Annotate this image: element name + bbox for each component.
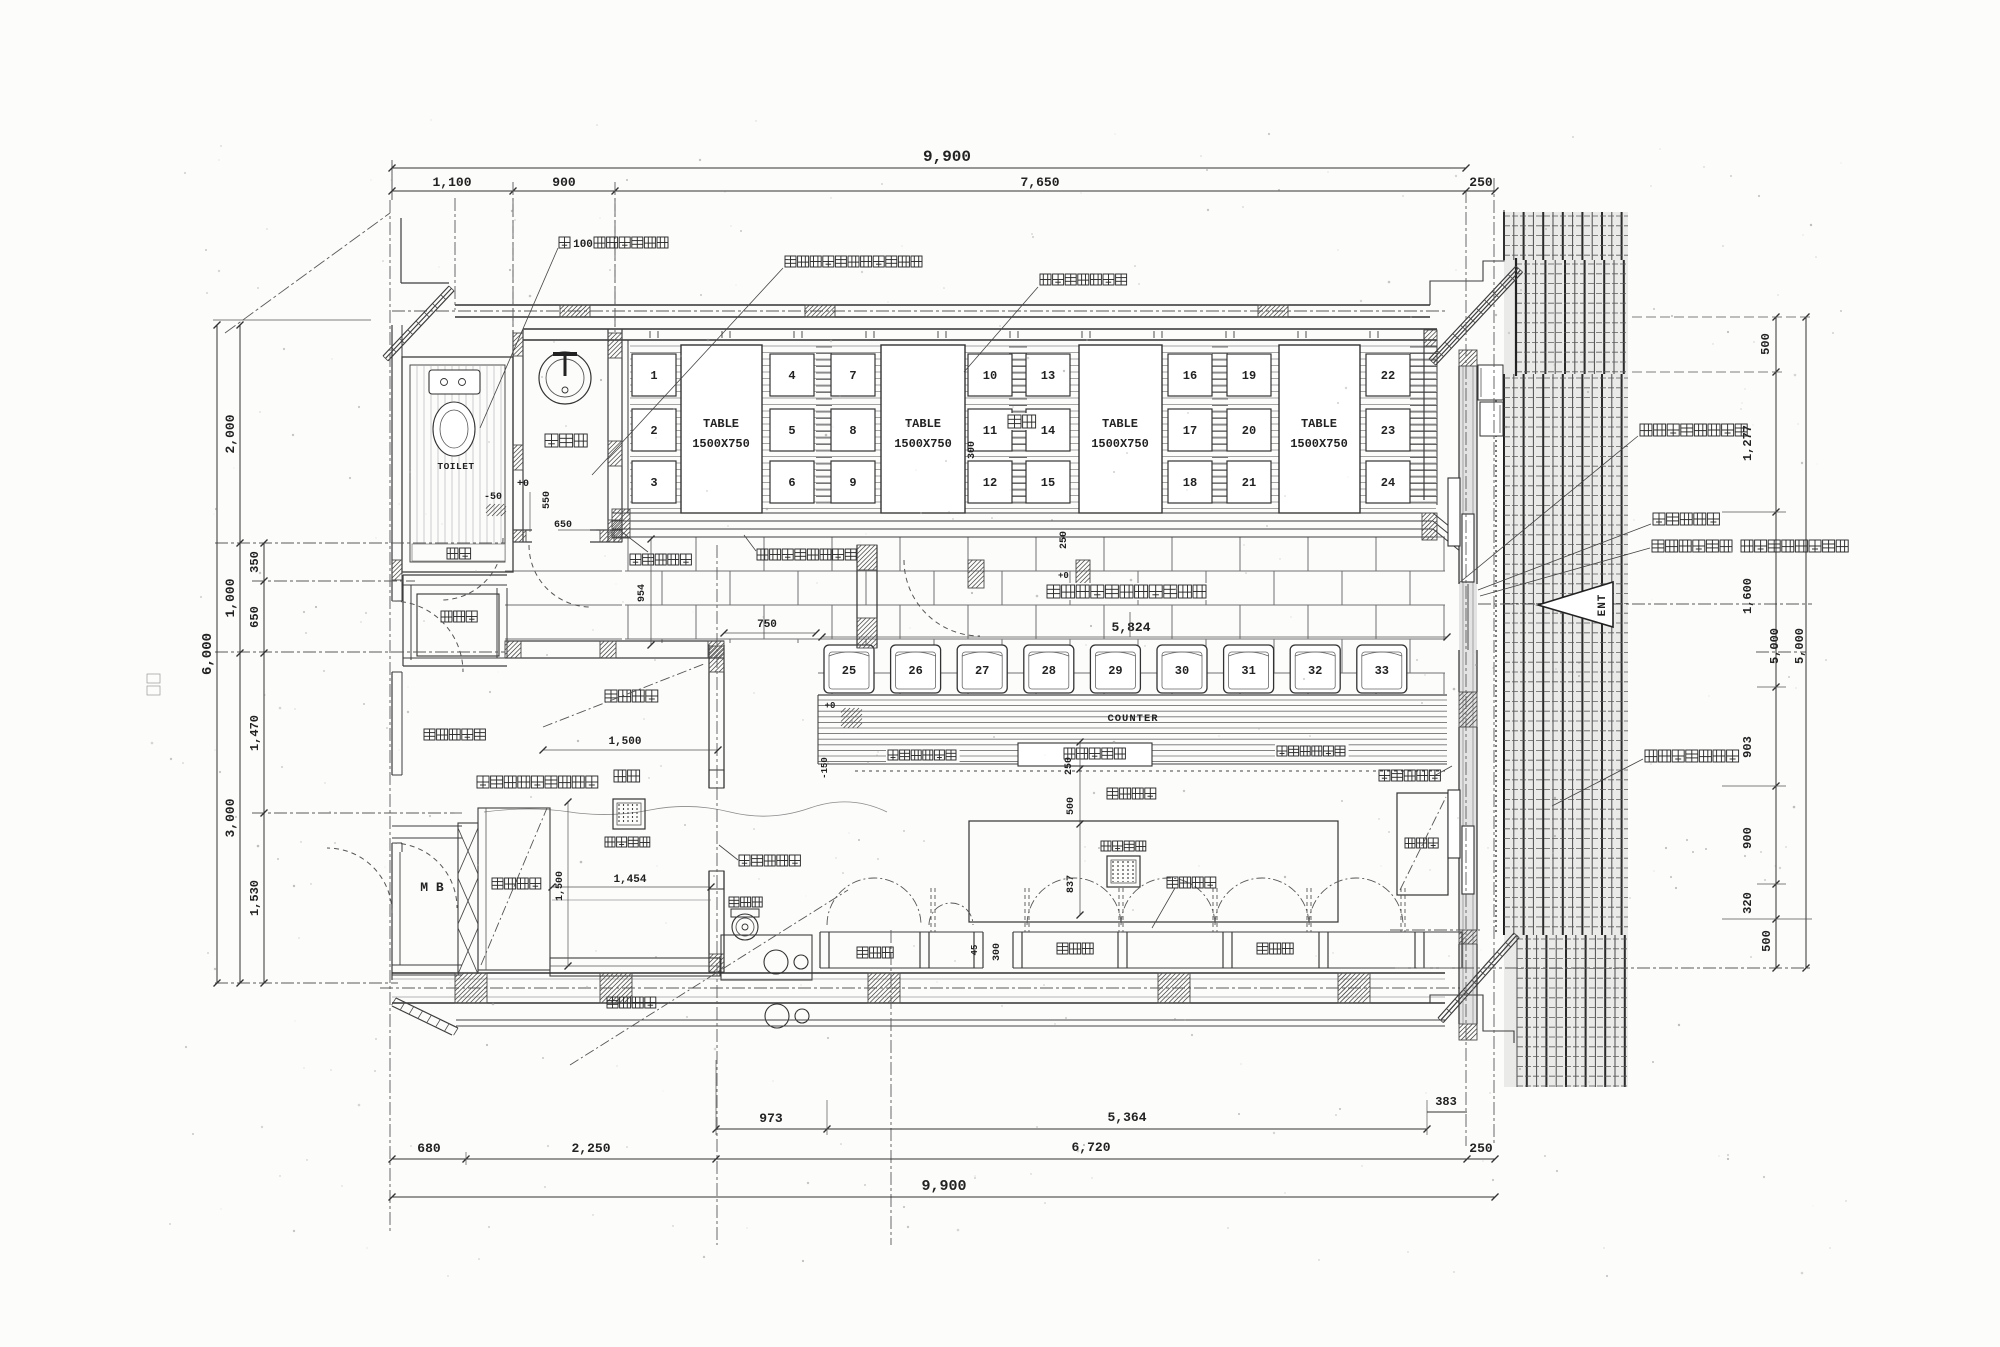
svg-text:1,100: 1,100: [432, 175, 471, 190]
svg-text:680: 680: [417, 1141, 441, 1156]
svg-text:903: 903: [1741, 736, 1755, 758]
svg-text:1500X750: 1500X750: [894, 437, 952, 451]
svg-text:2: 2: [650, 424, 657, 438]
svg-text:30: 30: [1175, 664, 1189, 678]
svg-text:7,650: 7,650: [1020, 175, 1059, 190]
svg-text:TABLE: TABLE: [1301, 417, 1337, 431]
svg-text:2,000: 2,000: [223, 414, 238, 453]
svg-text:M B: M B: [420, 880, 444, 895]
svg-text:18: 18: [1183, 476, 1197, 490]
svg-text:28: 28: [1042, 664, 1056, 678]
svg-text:+0: +0: [1058, 571, 1069, 581]
svg-text:900: 900: [1741, 827, 1755, 849]
svg-text:6: 6: [788, 476, 795, 490]
svg-text:500: 500: [1759, 333, 1773, 355]
svg-text:5,364: 5,364: [1107, 1110, 1146, 1125]
svg-text:+0: +0: [517, 479, 529, 490]
svg-text:8: 8: [849, 424, 856, 438]
svg-text:1500X750: 1500X750: [1290, 437, 1348, 451]
svg-text:3: 3: [650, 476, 657, 490]
svg-text:5,000: 5,000: [1793, 628, 1807, 664]
svg-text:1500X750: 1500X750: [1091, 437, 1149, 451]
svg-text:-150: -150: [820, 757, 830, 779]
svg-text:550: 550: [542, 491, 553, 509]
svg-text:32: 32: [1308, 664, 1322, 678]
svg-text:TABLE: TABLE: [1102, 417, 1138, 431]
svg-text:21: 21: [1242, 476, 1256, 490]
svg-text:17: 17: [1183, 424, 1197, 438]
svg-text:1,500: 1,500: [555, 871, 566, 901]
svg-text:7: 7: [849, 369, 856, 383]
svg-text:TABLE: TABLE: [703, 417, 739, 431]
svg-text:9,900: 9,900: [923, 148, 971, 166]
svg-text:11: 11: [983, 424, 997, 438]
svg-text:14: 14: [1041, 424, 1055, 438]
svg-text:+0: +0: [825, 701, 836, 711]
svg-text:33: 33: [1375, 664, 1389, 678]
svg-text:2,250: 2,250: [571, 1141, 610, 1156]
svg-text:25: 25: [842, 664, 856, 678]
svg-text:22: 22: [1381, 369, 1395, 383]
svg-text:1,530: 1,530: [248, 880, 262, 916]
svg-text:383: 383: [1435, 1095, 1457, 1109]
svg-text:250: 250: [1059, 531, 1070, 549]
svg-text:1,600: 1,600: [1741, 578, 1755, 614]
svg-text:5,824: 5,824: [1111, 620, 1150, 635]
svg-text:350: 350: [248, 551, 262, 573]
svg-text:1,470: 1,470: [248, 715, 262, 751]
svg-text:45: 45: [970, 945, 980, 956]
svg-text:1,454: 1,454: [613, 874, 646, 886]
svg-text:1: 1: [650, 369, 657, 383]
svg-text:300: 300: [992, 943, 1003, 961]
svg-text:750: 750: [757, 619, 777, 631]
svg-text:COUNTER: COUNTER: [1107, 713, 1158, 725]
svg-text:24: 24: [1381, 476, 1395, 490]
svg-text:1,000: 1,000: [223, 578, 238, 617]
svg-text:16: 16: [1183, 369, 1197, 383]
svg-text:27: 27: [975, 664, 989, 678]
svg-text:20: 20: [1242, 424, 1256, 438]
svg-text:250: 250: [1469, 175, 1493, 190]
svg-text:19: 19: [1242, 369, 1256, 383]
svg-text:10: 10: [983, 369, 997, 383]
svg-text:6,720: 6,720: [1071, 1140, 1110, 1155]
svg-text:-50: -50: [484, 492, 502, 503]
svg-text:250: 250: [1064, 757, 1075, 775]
svg-text:29: 29: [1108, 664, 1122, 678]
svg-text:31: 31: [1241, 664, 1255, 678]
svg-text:26: 26: [908, 664, 922, 678]
svg-text:TABLE: TABLE: [905, 417, 941, 431]
svg-text:650: 650: [554, 520, 572, 531]
svg-text:973: 973: [759, 1111, 783, 1126]
svg-text:1,500: 1,500: [608, 736, 641, 748]
svg-text:5: 5: [788, 424, 795, 438]
svg-text:9: 9: [849, 476, 856, 490]
svg-text:23: 23: [1381, 424, 1395, 438]
svg-text:500: 500: [1760, 930, 1774, 952]
svg-text:320: 320: [1741, 892, 1755, 914]
svg-text:954: 954: [637, 584, 648, 602]
svg-text:15: 15: [1041, 476, 1055, 490]
svg-text:6,000: 6,000: [200, 633, 216, 675]
svg-text:5,000: 5,000: [1768, 628, 1782, 664]
svg-text:1500X750: 1500X750: [692, 437, 750, 451]
svg-text:TOILET: TOILET: [437, 461, 474, 472]
svg-text:100: 100: [573, 239, 593, 251]
svg-text:1,277: 1,277: [1741, 425, 1755, 461]
svg-text:4: 4: [788, 369, 795, 383]
svg-text:13: 13: [1041, 369, 1055, 383]
svg-text:12: 12: [983, 476, 997, 490]
svg-text:250: 250: [1469, 1141, 1493, 1156]
svg-text:650: 650: [248, 606, 262, 628]
svg-text:500: 500: [1066, 797, 1077, 815]
svg-text:300: 300: [967, 441, 978, 459]
svg-text:900: 900: [552, 175, 576, 190]
svg-text:ENT: ENT: [1597, 594, 1609, 617]
svg-text:9,900: 9,900: [921, 1178, 966, 1195]
